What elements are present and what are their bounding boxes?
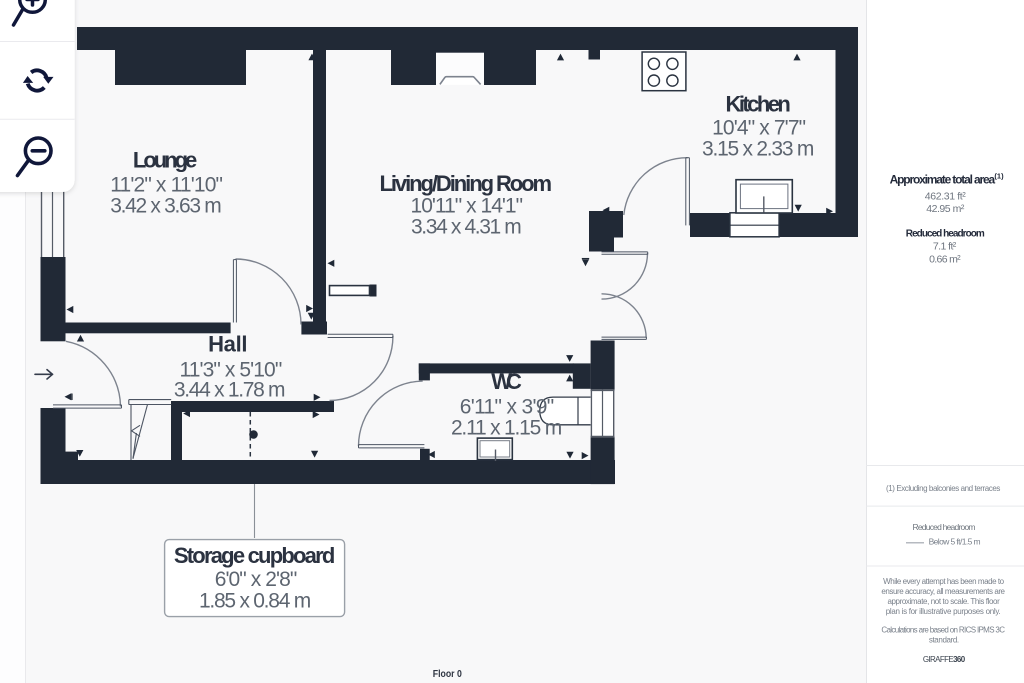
svg-text:1.85 x 0.84 m: 1.85 x 0.84 m [199,589,311,612]
svg-text:3.34 x 4.31 m: 3.34 x 4.31 m [411,216,522,239]
svg-text:Kitchen: Kitchen [726,92,791,117]
svg-text:standard.: standard. [929,635,959,644]
svg-text:Living/Dining Room: Living/Dining Room [380,171,553,196]
svg-text:GIRAFFE360: GIRAFFE360 [923,655,966,664]
svg-text:ensure accuracy, all measureme: ensure accuracy, all measurements are [881,587,1005,596]
svg-text:Below 5 ft/1.5 m: Below 5 ft/1.5 m [929,537,981,547]
svg-text:11'2" x 11'10": 11'2" x 11'10" [110,174,223,197]
svg-text:42.95 m²: 42.95 m² [926,203,965,215]
svg-text:462.31 ft²: 462.31 ft² [925,191,967,203]
svg-text:3.15 x 2.33 m: 3.15 x 2.33 m [702,137,814,160]
svg-text:Hall: Hall [208,332,247,357]
svg-text:Lounge: Lounge [133,147,197,172]
svg-text:approximate, not to scale. Thi: approximate, not to scale. This floor [887,597,1000,606]
svg-text:Storage cupboard: Storage cupboard [174,543,335,568]
svg-text:Reduced headroom: Reduced headroom [913,522,976,532]
svg-text:2.11 x 1.15 m: 2.11 x 1.15 m [451,417,562,440]
svg-text:(1): (1) [994,171,1004,180]
svg-text:Approximate total area: Approximate total area [890,172,996,186]
svg-text:0.66 m²: 0.66 m² [929,254,961,266]
svg-text:6'11" x 3'9": 6'11" x 3'9" [460,395,555,418]
svg-text:(1) Excluding balconies and te: (1) Excluding balconies and terraces [886,484,1000,493]
svg-text:plan is for illustrative purpo: plan is for illustrative purposes only. [886,607,1001,616]
svg-text:Calculations are based on RICS: Calculations are based on RICS IPMS 3C [881,625,1005,634]
svg-text:10'11" x 14'1": 10'11" x 14'1" [411,194,524,217]
svg-text:While every attempt has been m: While every attempt has been made to [883,577,1005,586]
svg-text:3.44 x 1.78 m: 3.44 x 1.78 m [174,379,286,402]
svg-text:7.1 ft²: 7.1 ft² [933,240,957,252]
svg-text:3.42 x 3.63 m: 3.42 x 3.63 m [110,195,221,218]
svg-text:Reduced headroom: Reduced headroom [906,228,985,239]
svg-text:Floor 0: Floor 0 [433,669,462,680]
svg-text:10'4" x 7'7": 10'4" x 7'7" [712,116,806,139]
svg-text:WC: WC [491,369,522,394]
svg-text:6'0" x 2'8": 6'0" x 2'8" [215,568,298,591]
